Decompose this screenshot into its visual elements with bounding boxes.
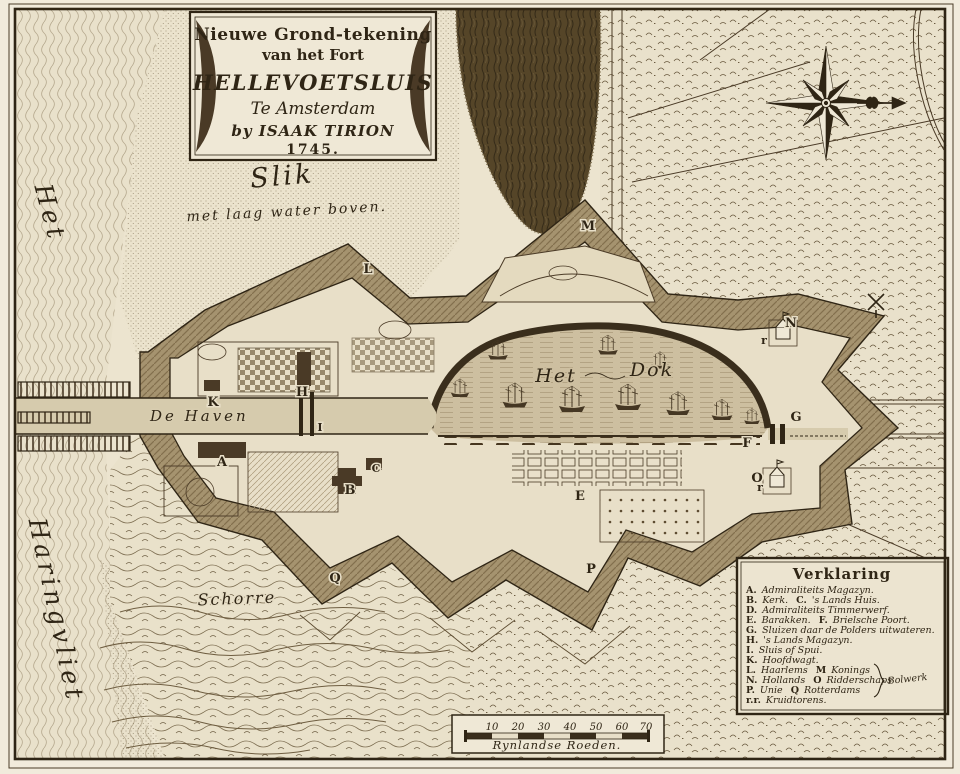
cartouche-line2: van het Fort xyxy=(261,46,364,64)
map-page: K H I A B C E F G L M N O P Q r r Slik m… xyxy=(0,0,960,774)
scale-bar: 10 20 30 40 50 60 70 Rynlandse Roeden. xyxy=(452,715,664,753)
marker-r2: r xyxy=(757,481,763,494)
svg-text:70: 70 xyxy=(640,722,653,733)
label-slik: Slik xyxy=(249,158,316,194)
marker-A: A xyxy=(216,455,228,470)
hoofdwagt-building xyxy=(204,380,220,391)
cartouche-line3: HELLEVOETSLUIS xyxy=(192,70,433,95)
small-boats-row xyxy=(440,437,760,445)
marker-F: F xyxy=(742,436,752,451)
garden-parterre xyxy=(352,338,434,372)
marker-P: P xyxy=(586,562,596,577)
svg-text:50: 50 xyxy=(590,722,603,733)
label-de-haven: De Haven xyxy=(149,407,249,425)
svg-text:20: 20 xyxy=(511,722,525,733)
svg-text:30: 30 xyxy=(538,722,551,733)
cartouche-line6: 1745. xyxy=(286,142,340,158)
label-het-dok-2: Dok xyxy=(629,359,674,381)
marker-G: G xyxy=(790,410,801,425)
svg-text:60: 60 xyxy=(616,722,629,733)
label-het-dok-1: Het xyxy=(534,365,576,387)
marker-B: B xyxy=(345,483,356,498)
brielsche-poort-gate xyxy=(780,424,785,444)
fleur-de-lis-icon xyxy=(866,97,878,109)
brielsche-poort-gate xyxy=(770,424,775,444)
walled-block xyxy=(248,452,338,512)
marker-r1: r xyxy=(761,334,767,347)
marker-C: C xyxy=(372,462,381,475)
marker-N: N xyxy=(785,316,797,331)
garden-parterre xyxy=(238,348,330,392)
svg-text:r.r.Kruidtorens.: r.r.Kruidtorens. xyxy=(746,695,826,706)
svg-text:10: 10 xyxy=(486,722,499,733)
orchard xyxy=(600,490,704,542)
marker-H: H xyxy=(296,385,308,400)
marker-M: M xyxy=(581,219,595,234)
scale-ticks: 10 20 30 40 50 60 70 xyxy=(486,722,653,733)
label-schorre: Schorre xyxy=(197,588,276,610)
marker-Q: Q xyxy=(329,571,340,586)
marker-I: I xyxy=(317,421,322,434)
scale-unit: Rynlandse Roeden. xyxy=(492,738,622,752)
marker-E: E xyxy=(575,489,585,504)
cartouche-line1: Nieuwe Grond-tekening xyxy=(194,25,432,45)
title-cartouche: Nieuwe Grond-tekening van het Fort HELLE… xyxy=(190,12,436,160)
barracks-rows xyxy=(512,450,682,486)
marker-L: L xyxy=(363,262,372,277)
cartouche-line4: Te Amsterdam xyxy=(251,99,376,119)
cartouche-line5: by ISAAK TIRION xyxy=(231,122,395,140)
sluice-gate xyxy=(310,392,314,436)
legend-title: Verklaring xyxy=(792,565,892,583)
legend-box: Verklaring A.Admiraliteits Magazyn. B.Ke… xyxy=(737,558,948,714)
map-canvas: K H I A B C E F G L M N O P Q r r Slik m… xyxy=(0,0,960,774)
lands-magazyn-building xyxy=(297,352,311,386)
svg-text:40: 40 xyxy=(563,722,577,733)
